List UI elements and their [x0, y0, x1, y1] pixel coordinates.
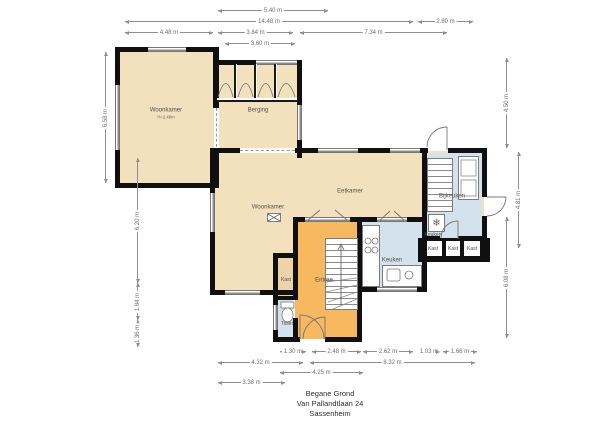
closet-front — [217, 98, 297, 102]
label-kast-1: Kast — [428, 246, 438, 252]
staircase-bijkeuken — [427, 158, 453, 212]
dimension-top-360: 3.60 m — [225, 43, 295, 44]
double-door-opening — [377, 217, 407, 222]
window — [210, 193, 215, 232]
dimension-top-540: 5.40 m — [218, 10, 328, 11]
exterior-door-top — [427, 127, 447, 150]
wall — [422, 240, 427, 292]
label-kast: Kast — [281, 277, 291, 283]
label-keuken-klein: Keuken — [425, 232, 442, 238]
dimension-left-620: 6.20 m — [137, 158, 138, 283]
sliding-opening — [214, 108, 219, 152]
wall — [407, 217, 427, 222]
freezer: ❄ — [428, 214, 445, 232]
sliding-opening — [240, 148, 295, 153]
dimension-right-481: 4.81 m — [518, 152, 519, 248]
label-kast-3: Kast — [467, 246, 477, 252]
dimension-right-450: 4.50 m — [506, 58, 507, 148]
dimension-right-608: 6.08 m — [506, 217, 507, 338]
bijkeuken-side-door — [487, 197, 506, 216]
label-keuken: Keuken — [382, 257, 402, 264]
wall — [350, 217, 377, 222]
closet-divider — [274, 64, 277, 100]
window — [115, 85, 120, 150]
plan-title: Begane Grond Van Pallandtlaan 24 Sassenh… — [230, 389, 430, 419]
wall — [273, 296, 298, 300]
wall — [273, 253, 298, 258]
dimension-left-136: 1.36 m — [137, 320, 138, 347]
window — [148, 47, 186, 52]
label-entree: Entree — [315, 277, 333, 284]
label-berging: Berging — [248, 107, 269, 114]
dimension-bottom-262: 2.62 m — [363, 351, 413, 352]
closet-divider — [234, 64, 237, 100]
dimension-bottom-832: 8.32 m — [310, 362, 475, 363]
dimension-top-448: 4.48 m — [125, 32, 213, 33]
wall — [115, 183, 215, 188]
label-bijkeuken: Bijkeuken — [439, 193, 465, 200]
dimension-top-1448: 14.48 m — [125, 21, 413, 22]
window — [377, 287, 417, 292]
label-woonkamer-left: Woonkamer H=2.48m — [150, 107, 182, 120]
window — [297, 105, 302, 140]
dimension-top-384: 3.84 m — [218, 32, 293, 33]
wall — [482, 148, 487, 197]
label-kast-2: Kast — [448, 246, 458, 252]
floor-plan: ❄ — [0, 0, 600, 424]
label-eetkamer: Eetkamer — [337, 188, 363, 195]
window — [390, 148, 420, 153]
wall — [293, 222, 298, 300]
kitchen-counter — [362, 225, 380, 287]
kitchen-counter-sink — [382, 265, 422, 287]
closet-divider — [254, 64, 257, 100]
dimension-bottom-338: 3.38 m — [218, 382, 285, 383]
dimension-bottom-103: 1.03 m — [418, 351, 440, 352]
dimension-top-280: 2.80 m — [418, 21, 473, 22]
title-city: Sassenheim — [230, 409, 430, 419]
dimension-bottom-166: 1.66 m — [443, 351, 477, 352]
dimension-bottom-248: 2.48 m — [312, 351, 361, 352]
dimension-top-734: 7.34 m — [300, 32, 447, 33]
double-door-opening — [305, 217, 350, 222]
staircase-entree — [325, 238, 358, 310]
window — [318, 148, 358, 153]
meter-box — [267, 213, 281, 222]
label-toilet: Toilet — [281, 321, 293, 327]
title-address: Van Pallandtlaan 24 — [230, 399, 430, 409]
dimension-bottom-432: 4.32 m — [218, 362, 303, 363]
snowflake-icon: ❄ — [432, 218, 440, 229]
wall — [325, 337, 362, 342]
room-toilet — [278, 300, 293, 337]
window — [225, 290, 260, 295]
dimension-bottom-130: 1.30 m — [280, 351, 306, 352]
dimension-left-658: 6.58 m — [105, 52, 106, 183]
title-floor: Begane Grond — [230, 389, 430, 399]
dimension-bottom-425: 4.25 m — [280, 372, 363, 373]
label-woonkamer: Woonkamer — [252, 204, 284, 211]
window — [273, 305, 278, 330]
dimension-left-184: 1.84 m — [137, 283, 138, 320]
